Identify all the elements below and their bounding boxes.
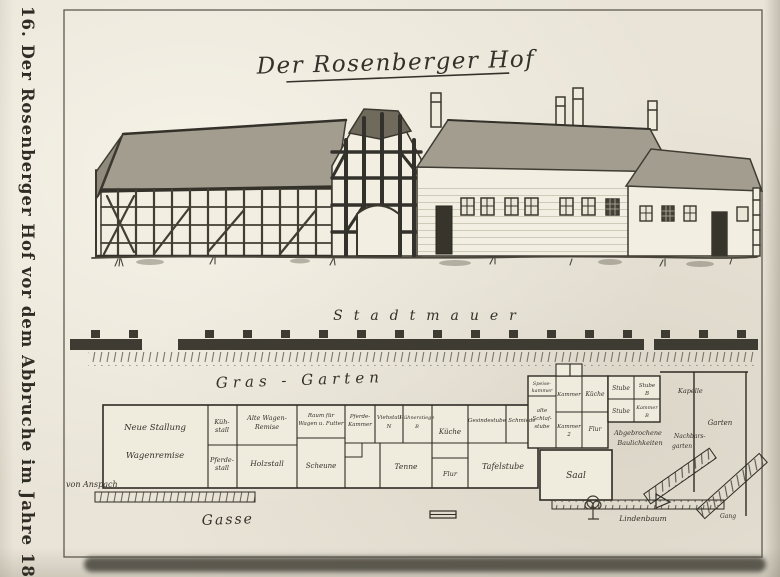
room-label: Küche	[585, 391, 605, 398]
city-wall-segment	[654, 329, 758, 350]
street-hatching	[95, 492, 255, 502]
room-label: Raum für	[307, 413, 335, 419]
room-label: Scheune	[306, 462, 337, 470]
room-label: Pferde-	[349, 414, 370, 420]
building-elevation	[92, 88, 762, 267]
nachbars-garten-label: Nachbars-	[673, 433, 705, 440]
page-bottom-shadow	[84, 557, 766, 572]
room-label: N	[386, 424, 392, 430]
elevation-left-barn	[96, 120, 346, 257]
room-label: Remise	[254, 423, 279, 431]
room-label: Tenne	[395, 462, 419, 471]
chimney	[556, 97, 565, 126]
room-label: Tafelstube	[482, 462, 524, 471]
room-label: Kammer	[556, 392, 581, 398]
room-label: Saal	[566, 471, 586, 481]
room-label: Küche	[438, 428, 461, 436]
room-label: stube	[534, 424, 550, 430]
window	[737, 207, 748, 221]
chimney	[573, 88, 583, 126]
ground-line	[92, 257, 757, 267]
plate-title: Der Rosenberger Hof	[255, 46, 537, 82]
room-label: stall	[215, 426, 229, 434]
nachbars-garten-label: garten	[672, 443, 692, 450]
garten-label: Garten	[708, 419, 733, 427]
window-dark	[606, 199, 619, 215]
elevation-right-wing	[626, 149, 762, 256]
room-label: B	[644, 413, 649, 419]
room-label: B	[414, 424, 419, 430]
elevation-center-gable	[332, 109, 421, 256]
gras-garten-label: Gras - Garten	[216, 368, 385, 392]
plan-annex-box	[556, 364, 570, 376]
room-label: Neue Stallung	[123, 423, 186, 433]
room-label: Schlaf-	[532, 416, 551, 422]
room-label: Stube	[639, 383, 656, 389]
kapelle-label: Kapelle	[677, 387, 703, 395]
room-label: Flur	[588, 426, 603, 433]
room-label: Holzstall	[249, 459, 284, 468]
city-wall-segment	[70, 329, 142, 350]
wing-door	[712, 212, 727, 256]
room-label: Stube	[612, 408, 630, 415]
room-label: Pferde-	[209, 456, 234, 464]
gasse-label: Gasse	[202, 511, 255, 529]
house-door	[436, 206, 452, 254]
room-label: kammer	[532, 388, 553, 394]
abgebrochene-label: Baulichkeiten	[616, 439, 662, 447]
room-label: Kammer	[635, 405, 658, 411]
plan-annex-box	[570, 364, 582, 376]
room-label: Küh-	[213, 418, 229, 426]
stadtmauer: Stadtmauer	[70, 308, 758, 366]
room-label: Wagenremise	[126, 451, 184, 461]
room-label: Speise-	[533, 381, 552, 387]
book-page: 16. Der Rosenberger Hof vor dem Abbruche…	[0, 0, 780, 577]
chimney	[431, 93, 441, 127]
gang-label: Gang	[720, 513, 736, 520]
lindenbaum-label: Lindenbaum	[618, 514, 667, 523]
room-label: stall	[215, 464, 229, 472]
room-label: Kammer	[556, 424, 581, 430]
room-label: Gesindestube	[468, 418, 507, 424]
room-label: Wagen u. Futter	[298, 421, 344, 427]
plate-drawing: Der Rosenberger Hof	[0, 0, 780, 577]
room-label: alte	[537, 408, 548, 414]
room-label: Viehstall	[377, 415, 402, 421]
diagonal-path-hatching	[644, 448, 716, 504]
room-label: 2	[566, 432, 571, 438]
abgebrochene-label: Abgebrochene	[613, 429, 662, 437]
street-hatching	[552, 500, 724, 509]
von-anspach-label: von Anspach	[66, 480, 118, 489]
room-label: Hühnerstiege	[399, 415, 435, 421]
city-wall-segment	[178, 329, 644, 350]
window-dark	[662, 206, 674, 221]
stadtmauer-label: Stadtmauer	[333, 308, 527, 324]
chimney	[648, 101, 657, 130]
wall-embankment-hatching	[88, 352, 756, 366]
room-label: B	[644, 391, 649, 397]
room-label: Stube	[612, 385, 630, 392]
plate-title-text: Der Rosenberger Hof	[255, 46, 537, 79]
room-label: Flur	[442, 470, 458, 478]
room-label: Alte Wagen-	[246, 414, 287, 422]
room-label: Kammer	[347, 422, 372, 428]
floor-plan	[95, 364, 767, 519]
arched-doorway	[357, 206, 399, 257]
